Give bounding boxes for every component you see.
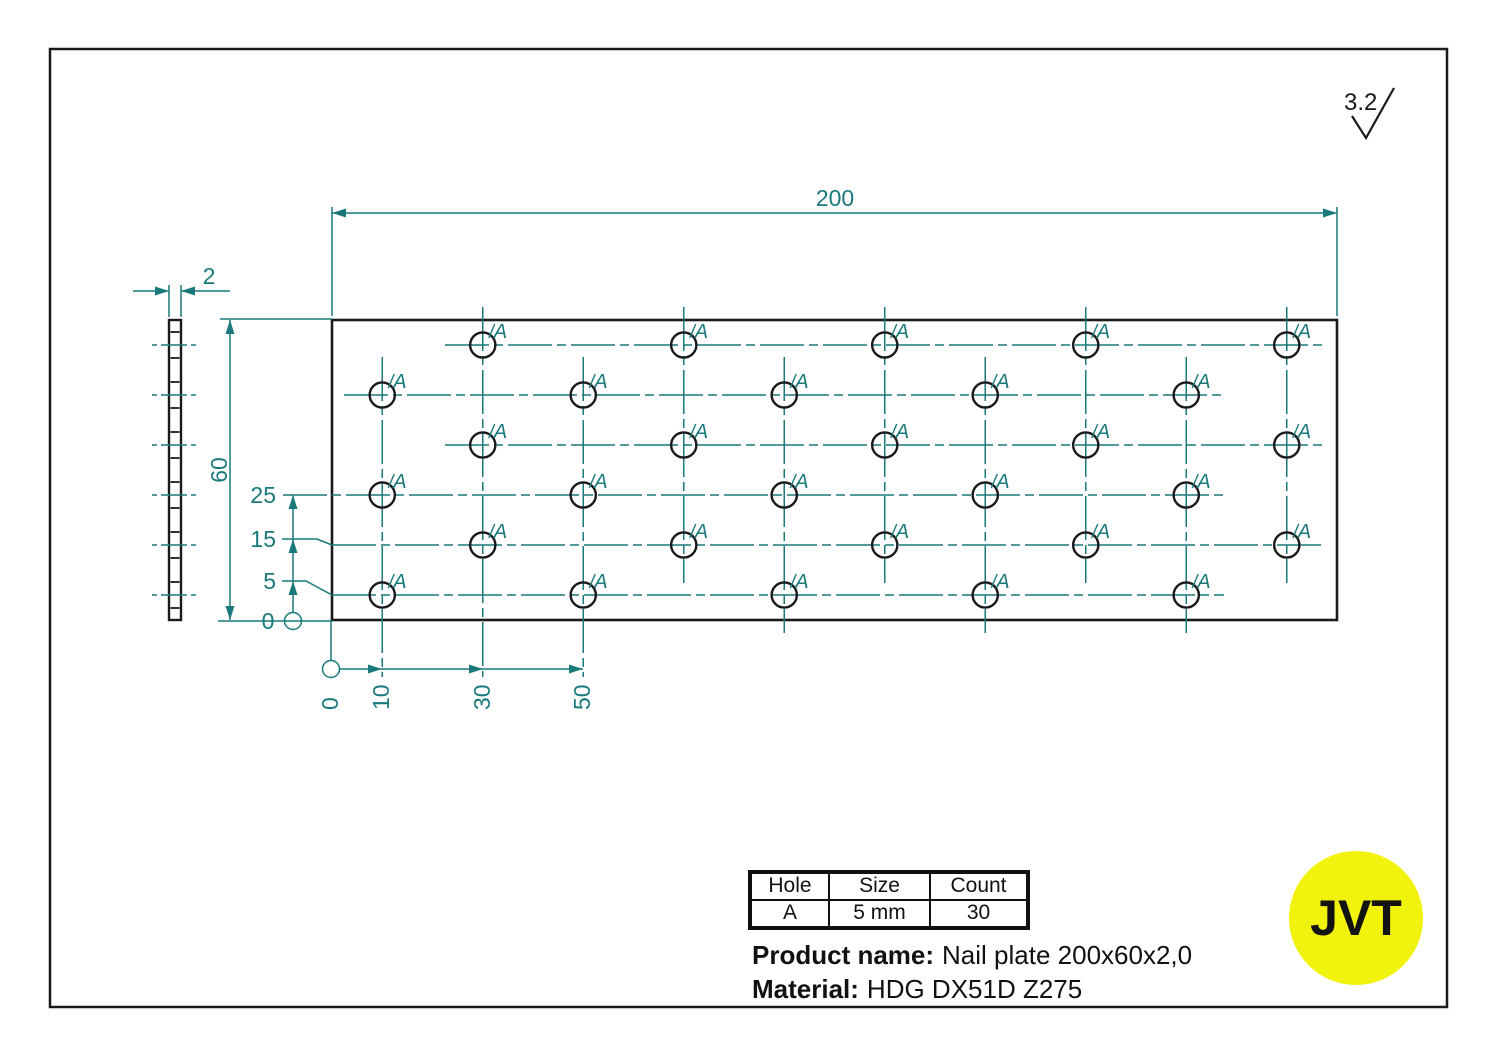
hole-label: A (1096, 421, 1110, 443)
datum-circle (323, 661, 340, 678)
dimension-arrow (226, 320, 235, 334)
ordinate-label-30: 30 (469, 684, 495, 710)
hole-label: A (995, 371, 1009, 393)
dimension-arrow (368, 665, 382, 674)
hole-label: A (794, 571, 808, 593)
hole-label: A (1297, 421, 1311, 443)
plate-side-view-outline (169, 320, 181, 620)
dimension-arrow (289, 581, 298, 595)
dimension-arrow (181, 287, 195, 296)
hole-label: A (1196, 471, 1210, 493)
ordinate-label-0-left: 0 (262, 608, 275, 634)
product-name-value: Nail plate 200x60x2,0 (942, 940, 1192, 970)
hole-label: A (593, 371, 607, 393)
dimension-arrow (155, 287, 169, 296)
hole-label: A (694, 521, 708, 543)
hole-label: A (995, 571, 1009, 593)
hole-label: A (392, 371, 406, 393)
roughness-value: 3.2 (1344, 89, 1377, 116)
ordinate-label-15: 15 (250, 526, 276, 552)
dimension-arrow (569, 665, 583, 674)
ordinate-label-25: 25 (250, 482, 276, 508)
ordinate-label-0-bottom: 0 (317, 697, 343, 710)
ordinate-label-5: 5 (263, 568, 276, 594)
hole-label: A (895, 521, 909, 543)
hole-table-header-hole: Hole (752, 874, 828, 899)
ordinate-label-50: 50 (569, 684, 595, 710)
hole-label: A (493, 521, 507, 543)
drawing-sheet: AAAAAAAAAAAAAAAAAAAAAAAAAAAAAA (0, 0, 1497, 1058)
hole-label: A (392, 471, 406, 493)
hole-label: A (1096, 321, 1110, 343)
hole-label: A (895, 321, 909, 343)
dimension-arrow (332, 209, 346, 218)
hole-label: A (794, 371, 808, 393)
ordinate-leader (282, 539, 332, 545)
hole-label: A (593, 471, 607, 493)
material-label: Material: (752, 974, 859, 1004)
hole-label: A (995, 471, 1009, 493)
dim-width-label: 200 (816, 185, 854, 211)
hole-label: A (1196, 371, 1210, 393)
hole-label: A (694, 321, 708, 343)
dimension-arrow (226, 606, 235, 620)
product-name-line: Product name:Nail plate 200x60x2,0 (752, 938, 1192, 972)
hole-label: A (1297, 321, 1311, 343)
dim-height-label: 60 (206, 457, 232, 483)
hole-label: A (1196, 571, 1210, 593)
dimension-arrow (469, 665, 483, 674)
product-name-label: Product name: (752, 940, 934, 970)
dimension-arrow (1323, 209, 1337, 218)
hole-label: A (1297, 521, 1311, 543)
dim-thickness-label: 2 (203, 263, 216, 289)
hole-table-header-row: Hole Size Count (752, 874, 1026, 899)
dimension-arrow (289, 539, 298, 553)
hole-label: A (794, 471, 808, 493)
hole-table-header-size: Size (828, 874, 929, 899)
material-line: Material:HDG DX51D Z275 (752, 972, 1192, 1006)
hole-table-cell-count: 30 (929, 901, 1026, 926)
hole-label: A (694, 421, 708, 443)
material-value: HDG DX51D Z275 (867, 974, 1082, 1004)
company-logo: JVT (1289, 851, 1423, 985)
company-logo-text: JVT (1310, 889, 1402, 947)
hole-label: A (1096, 521, 1110, 543)
hole-label: A (493, 321, 507, 343)
title-info: Product name:Nail plate 200x60x2,0 Mater… (752, 938, 1192, 1006)
hole-table-cell-hole: A (752, 901, 828, 926)
hole-label: A (493, 421, 507, 443)
hole-label: A (593, 571, 607, 593)
hole-label: A (895, 421, 909, 443)
surface-roughness-symbol: 3.2 (1344, 88, 1394, 138)
hole-table-header-count: Count (929, 874, 1026, 899)
hole-table-cell-size: 5 mm (828, 901, 929, 926)
hole-table: Hole Size Count A 5 mm 30 (748, 870, 1030, 930)
hole-label: A (392, 571, 406, 593)
dimension-arrow (289, 495, 298, 509)
ordinate-label-10: 10 (368, 684, 394, 710)
hole-table-data-row: A 5 mm 30 (752, 899, 1026, 926)
